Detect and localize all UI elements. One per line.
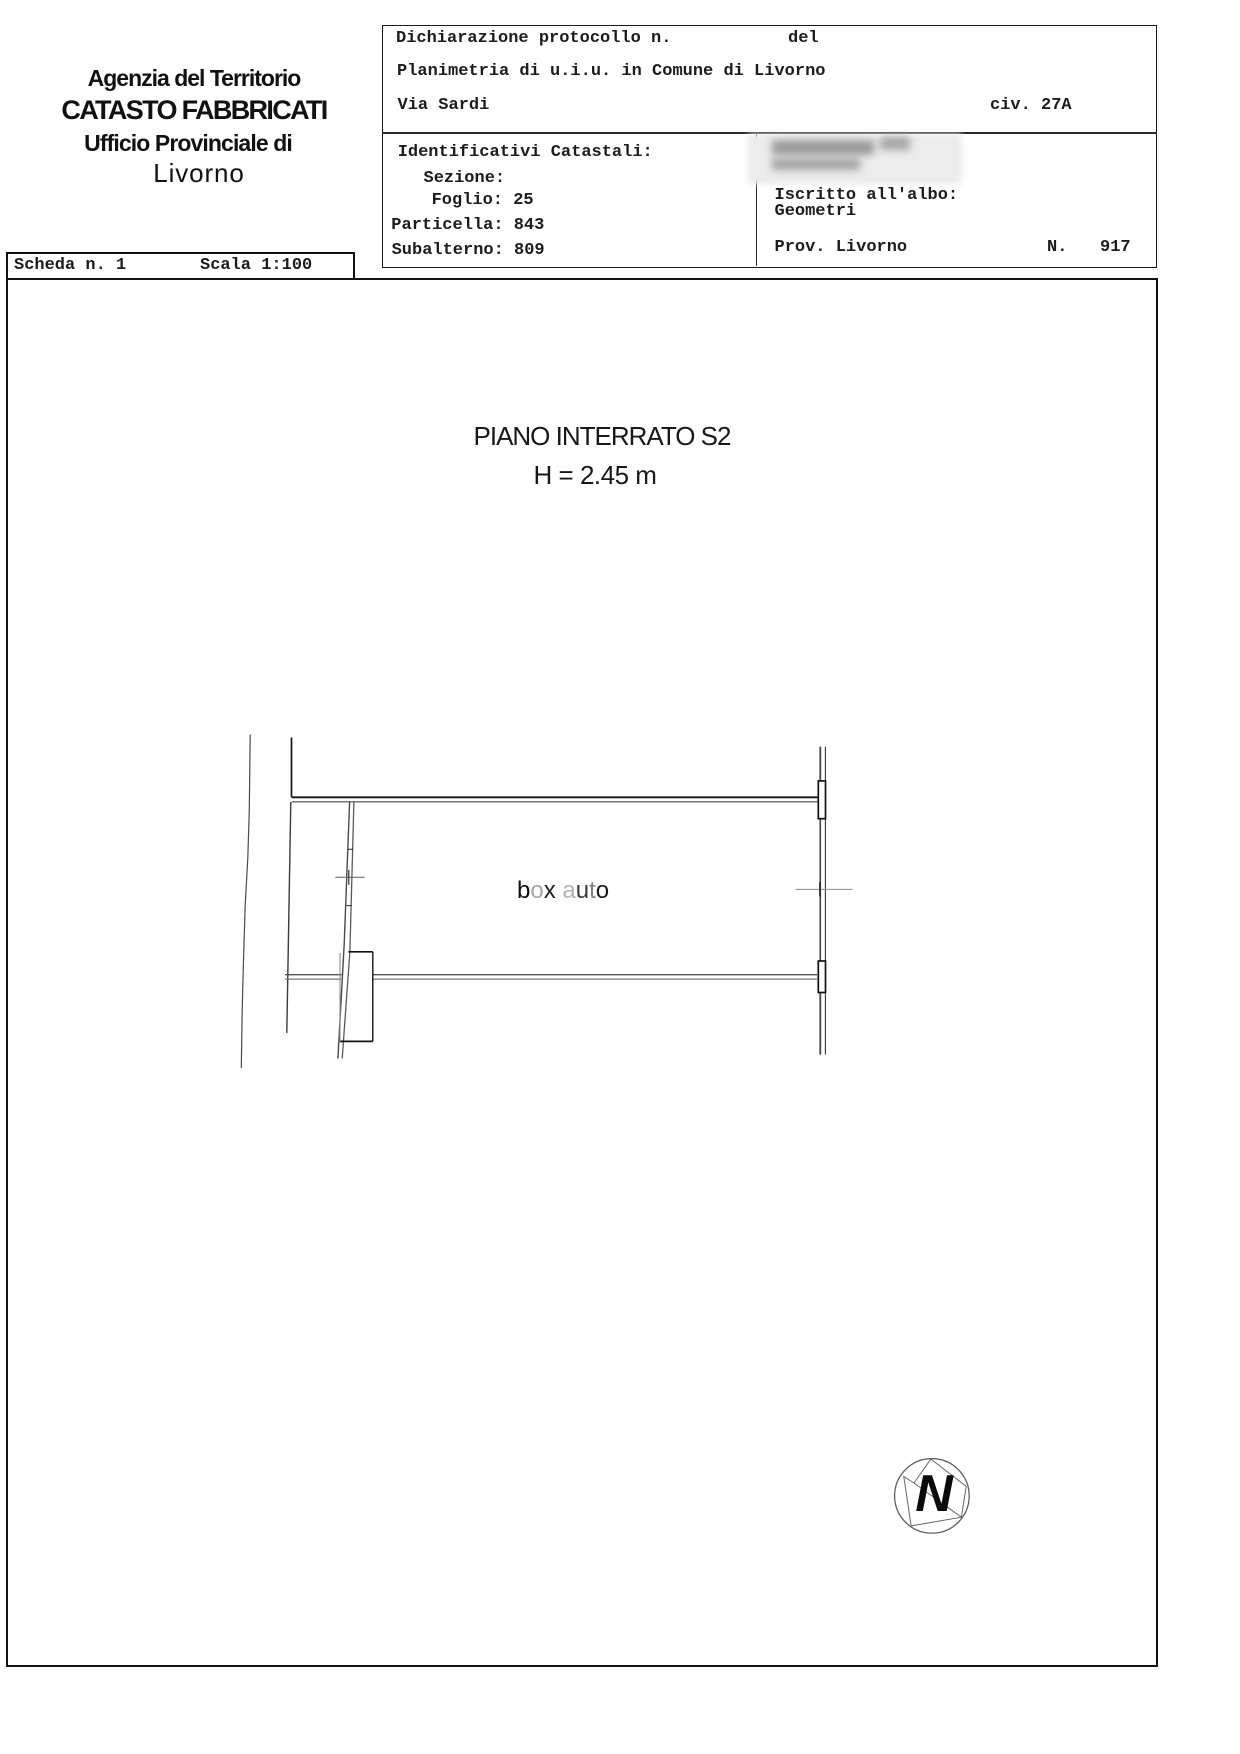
- svg-text:N: N: [915, 1465, 954, 1523]
